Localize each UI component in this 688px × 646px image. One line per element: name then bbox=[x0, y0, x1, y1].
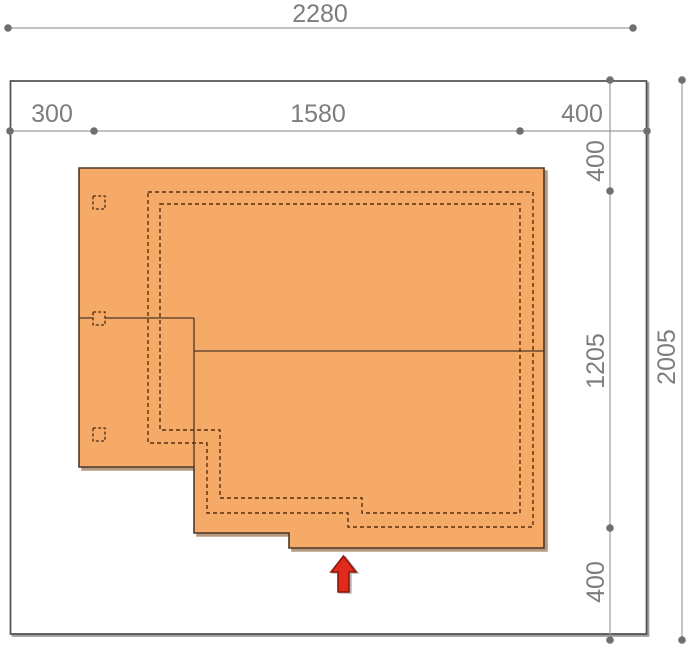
dimension-label-total-width: 2280 bbox=[292, 0, 348, 28]
dimension-endpoint-dot bbox=[606, 524, 614, 532]
dimension-endpoint-dot bbox=[643, 127, 651, 135]
dimension-endpoint-dot bbox=[516, 127, 524, 135]
dimension-endpoint-dot bbox=[4, 24, 12, 32]
pillar bbox=[93, 196, 105, 209]
dimension-endpoint-dot bbox=[90, 127, 98, 135]
dimension-label-bottom-offset: 400 bbox=[582, 561, 610, 603]
dimension-endpoint-dot bbox=[606, 187, 614, 195]
dimension-endpoint-dot bbox=[606, 636, 614, 644]
dimension-total-depth: 2005 bbox=[653, 76, 686, 644]
site-plan-drawing: 2280 300 1580 400 400 1205 400 2005 bbox=[0, 0, 688, 646]
dimension-endpoint-dot bbox=[6, 127, 14, 135]
dimension-label-top-offset: 400 bbox=[582, 140, 610, 182]
site-plan-canvas: 2280 300 1580 400 400 1205 400 2005 bbox=[0, 0, 688, 646]
dimension-label-right-offset: 400 bbox=[561, 100, 603, 128]
dimension-endpoint-dot bbox=[606, 76, 614, 84]
dimension-label-building-width: 1580 bbox=[290, 100, 346, 128]
dimension-label-building-depth: 1205 bbox=[582, 333, 610, 389]
dimension-label-total-depth: 2005 bbox=[653, 329, 681, 385]
pillar bbox=[93, 428, 105, 441]
pillar bbox=[93, 312, 105, 325]
dimension-endpoint-dot bbox=[678, 76, 686, 84]
dimension-total-width: 2280 bbox=[4, 0, 637, 32]
dimension-endpoint-dot bbox=[678, 636, 686, 644]
dimension-endpoint-dot bbox=[629, 24, 637, 32]
dimension-label-left-offset: 300 bbox=[31, 100, 73, 128]
